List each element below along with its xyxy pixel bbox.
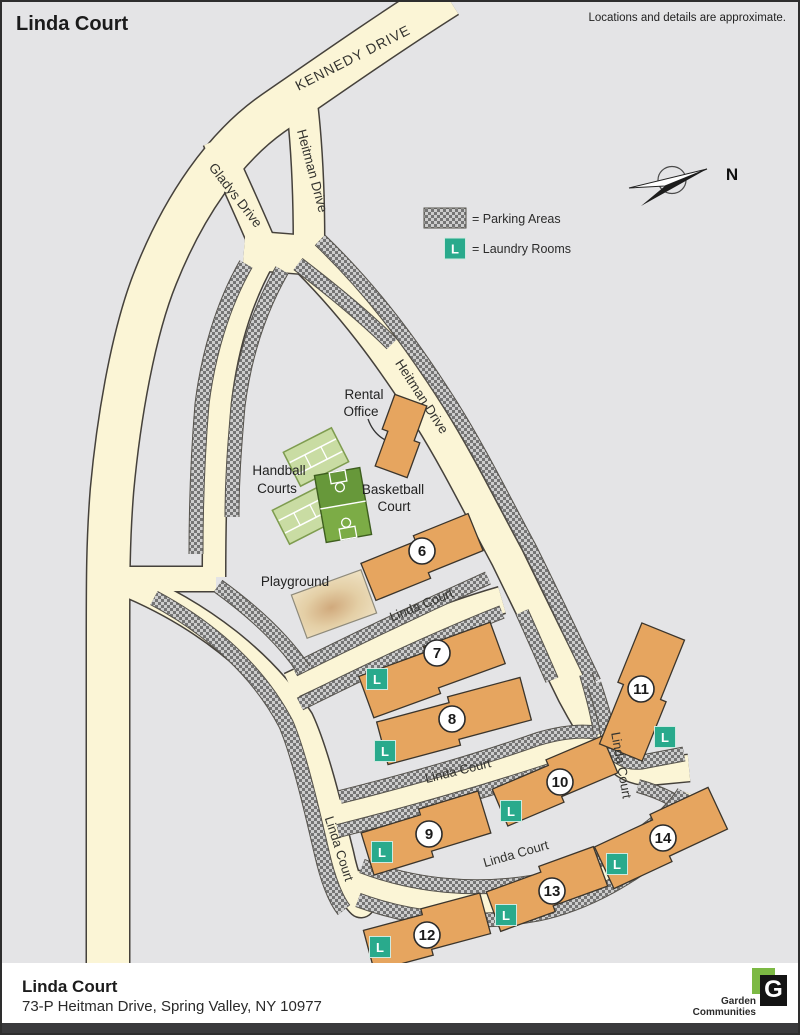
svg-text:L: L xyxy=(661,730,669,745)
basketball-court-label: Basketball xyxy=(362,482,424,497)
street-label: Linda Court xyxy=(481,837,550,870)
site-map-page: 67891011121314 LLLLLLLL KENNEDY DRIVEHei… xyxy=(0,0,800,1035)
legend-parking-label: = Parking Areas xyxy=(472,212,561,226)
handball-courts-label: Courts xyxy=(257,481,297,496)
building-number: 8 xyxy=(448,711,456,728)
laundry-marker: L xyxy=(655,727,676,748)
basketball-court-label: Court xyxy=(377,499,410,514)
svg-text:L: L xyxy=(502,908,510,923)
building-number: 6 xyxy=(418,543,426,560)
laundry-marker: L xyxy=(372,842,393,863)
logo-text-garden: Garden xyxy=(692,996,756,1007)
building-number: 14 xyxy=(655,830,672,847)
svg-text:L: L xyxy=(507,804,515,819)
svg-text:L: L xyxy=(613,857,621,872)
laundry-marker: L xyxy=(607,854,628,875)
laundry-marker: L xyxy=(501,801,522,822)
legend: = Parking Areas L = Laundry Rooms xyxy=(424,208,571,259)
compass-north-label: N xyxy=(726,165,738,184)
rental-office-label: Office xyxy=(343,404,378,419)
laundry-marker: L xyxy=(370,937,391,958)
logo-text-communities: Communities xyxy=(680,1007,756,1018)
rental-office-label: Rental xyxy=(344,387,383,402)
building-number: 10 xyxy=(552,774,569,791)
playground-label: Playground xyxy=(261,574,329,589)
svg-text:L: L xyxy=(381,744,389,759)
building-number: 11 xyxy=(633,681,649,698)
page-title: Linda Court xyxy=(16,13,128,36)
laundry-marker: L xyxy=(496,905,517,926)
footer: Linda Court 73-P Heitman Drive, Spring V… xyxy=(2,963,798,1023)
laundry-marker: L xyxy=(367,669,388,690)
footer-address: 73-P Heitman Drive, Spring Valley, NY 10… xyxy=(22,998,322,1015)
laundry-swatch-letter: L xyxy=(451,242,459,257)
handball-courts-label: Handball xyxy=(252,463,305,478)
building-number: 9 xyxy=(425,826,433,843)
footer-title: Linda Court xyxy=(22,977,117,997)
building-number: 7 xyxy=(433,645,441,662)
laundry-marker: L xyxy=(375,741,396,762)
svg-text:L: L xyxy=(376,940,384,955)
svg-text:L: L xyxy=(373,672,381,687)
legend-laundry-label: = Laundry Rooms xyxy=(472,242,571,256)
site-map: 67891011121314 LLLLLLLL KENNEDY DRIVEHei… xyxy=(2,2,800,963)
building-number: 12 xyxy=(419,927,436,944)
basketball-court xyxy=(314,468,371,543)
compass-icon: N xyxy=(629,165,738,206)
parking-swatch-icon xyxy=(424,208,466,228)
disclaimer-text: Locations and details are approximate. xyxy=(588,12,786,24)
svg-text:L: L xyxy=(378,845,386,860)
bottom-bar xyxy=(2,1023,798,1034)
building-number: 13 xyxy=(544,883,561,900)
garden-communities-logo-letter: G xyxy=(760,975,787,1006)
